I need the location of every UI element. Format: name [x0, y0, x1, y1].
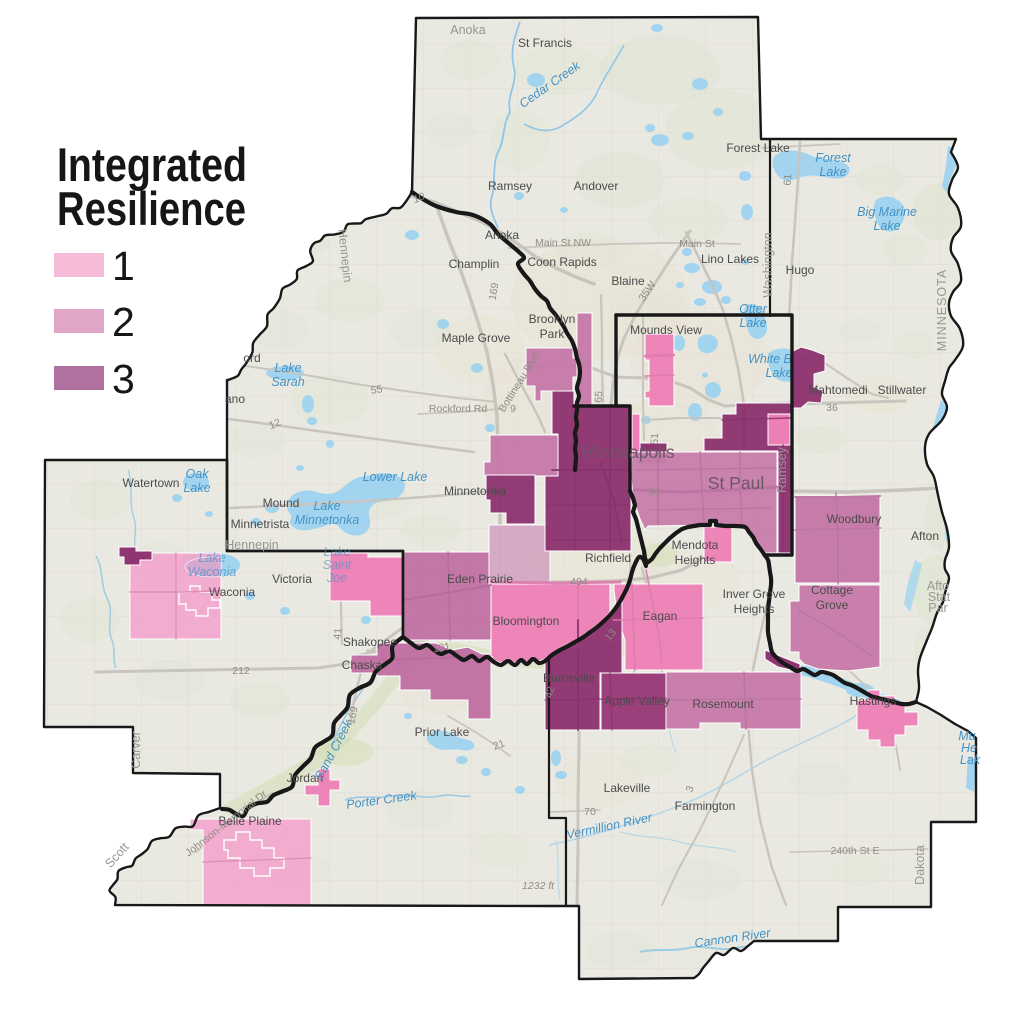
svg-text:Heights: Heights: [675, 553, 716, 567]
svg-text:Washington: Washington: [761, 232, 775, 298]
svg-text:Prior Lake: Prior Lake: [415, 725, 470, 739]
svg-text:9: 9: [510, 403, 516, 415]
svg-text:Dakota: Dakota: [913, 845, 927, 885]
svg-text:36: 36: [826, 402, 838, 414]
svg-text:51: 51: [649, 433, 661, 445]
svg-text:Richfield: Richfield: [585, 551, 631, 565]
svg-text:MINNESOTA: MINNESOTA: [935, 269, 949, 351]
svg-text:Coon Rapids: Coon Rapids: [527, 255, 596, 269]
svg-text:Lake: Lake: [274, 361, 301, 375]
svg-text:ano: ano: [225, 392, 245, 406]
svg-text:Resilience: Resilience: [57, 182, 246, 235]
svg-text:Ramsey: Ramsey: [775, 446, 789, 493]
svg-text:Maple Grove: Maple Grove: [442, 331, 511, 345]
svg-text:Lake: Lake: [819, 165, 846, 179]
svg-text:Farmington: Farmington: [675, 799, 736, 813]
svg-text:Saint: Saint: [323, 558, 352, 572]
svg-text:ord: ord: [243, 351, 260, 365]
svg-text:Ramsey: Ramsey: [488, 179, 532, 193]
svg-text:Joe: Joe: [326, 571, 347, 585]
svg-text:Afton: Afton: [911, 529, 939, 543]
svg-text:St Paul: St Paul: [708, 473, 764, 493]
svg-text:61: 61: [782, 173, 795, 186]
svg-text:Lake: Lake: [739, 316, 766, 330]
svg-text:Sarah: Sarah: [271, 375, 304, 389]
svg-text:Hugo: Hugo: [786, 263, 815, 277]
svg-text:St Francis: St Francis: [518, 36, 572, 50]
svg-text:Lake: Lake: [765, 366, 792, 380]
svg-text:Lake: Lake: [198, 551, 225, 565]
svg-text:Park: Park: [540, 327, 566, 341]
svg-text:Eagan: Eagan: [643, 609, 678, 623]
svg-text:240th St E: 240th St E: [830, 845, 879, 857]
svg-text:Hastings: Hastings: [850, 694, 897, 708]
svg-text:Anoka: Anoka: [450, 23, 485, 37]
svg-text:Main St NW: Main St NW: [535, 237, 591, 249]
svg-text:Minnetrista: Minnetrista: [231, 517, 290, 531]
svg-text:Shakopee: Shakopee: [343, 635, 397, 649]
svg-text:Woodbury: Woodbury: [827, 512, 881, 526]
svg-text:Rosemount: Rosemount: [692, 697, 754, 711]
svg-text:Mahtomedi: Mahtomedi: [808, 383, 867, 397]
svg-text:Lower Lake: Lower Lake: [363, 470, 428, 484]
svg-text:Forest Lake: Forest Lake: [726, 141, 790, 155]
svg-text:55: 55: [370, 383, 383, 397]
svg-text:Grove: Grove: [816, 598, 849, 612]
svg-text:Anoka: Anoka: [485, 228, 519, 242]
svg-text:Lake: Lake: [183, 481, 210, 495]
svg-text:Mound: Mound: [263, 496, 300, 510]
svg-text:65: 65: [593, 391, 605, 403]
svg-text:Victoria: Victoria: [272, 572, 312, 586]
svg-text:Apple Valley: Apple Valley: [604, 694, 670, 708]
svg-text:Blaine: Blaine: [611, 274, 645, 288]
svg-text:Otter: Otter: [739, 302, 768, 316]
svg-text:Waconia: Waconia: [188, 565, 236, 579]
svg-text:Brooklyn: Brooklyn: [529, 312, 576, 326]
svg-text:Andover: Andover: [574, 179, 619, 193]
svg-text:Stillwater: Stillwater: [878, 383, 927, 397]
svg-text:Hennepin: Hennepin: [225, 538, 279, 552]
svg-text:Forest: Forest: [815, 151, 851, 165]
svg-text:2: 2: [112, 299, 135, 345]
svg-text:70: 70: [584, 806, 596, 818]
svg-text:Bloomington: Bloomington: [493, 614, 560, 628]
svg-text:Lino Lakes: Lino Lakes: [701, 252, 759, 266]
svg-text:1: 1: [112, 243, 135, 289]
svg-text:Par: Par: [928, 601, 947, 615]
svg-text:Rockford Rd: Rockford Rd: [429, 403, 488, 415]
svg-text:Watertown: Watertown: [123, 476, 180, 490]
svg-text:Heights: Heights: [734, 602, 775, 616]
svg-text:Champlin: Champlin: [449, 257, 500, 271]
svg-text:Chaska: Chaska: [342, 658, 383, 672]
svg-text:Lake: Lake: [313, 499, 340, 513]
svg-text:Carver: Carver: [129, 731, 143, 769]
svg-text:Mounds View: Mounds View: [630, 323, 702, 337]
svg-text:Mendota: Mendota: [672, 538, 719, 552]
svg-text:41: 41: [332, 627, 345, 640]
svg-text:1232 ft: 1232 ft: [522, 880, 555, 892]
svg-text:Main St: Main St: [679, 238, 715, 250]
svg-text:Minnetonka: Minnetonka: [295, 513, 360, 527]
svg-text:Eden Prairie: Eden Prairie: [447, 572, 513, 586]
svg-text:Lake: Lake: [873, 219, 900, 233]
svg-text:Lakeville: Lakeville: [604, 781, 651, 795]
svg-text:Cottage: Cottage: [811, 583, 853, 597]
svg-text:Lake: Lake: [323, 545, 350, 559]
svg-text:Inver Grove: Inver Grove: [723, 587, 786, 601]
svg-text:Oak: Oak: [186, 467, 210, 481]
svg-text:Burnsville: Burnsville: [543, 671, 595, 685]
svg-text:Lak: Lak: [960, 753, 981, 767]
svg-text:3: 3: [112, 356, 135, 402]
svg-text:94: 94: [648, 486, 660, 498]
svg-text:212: 212: [232, 665, 250, 677]
svg-text:494: 494: [570, 576, 588, 588]
svg-text:Waconia: Waconia: [209, 585, 256, 599]
svg-text:Big Marine: Big Marine: [857, 205, 917, 219]
svg-text:Minneapolis: Minneapolis: [581, 442, 675, 462]
svg-text:Minnetonka: Minnetonka: [444, 484, 506, 498]
